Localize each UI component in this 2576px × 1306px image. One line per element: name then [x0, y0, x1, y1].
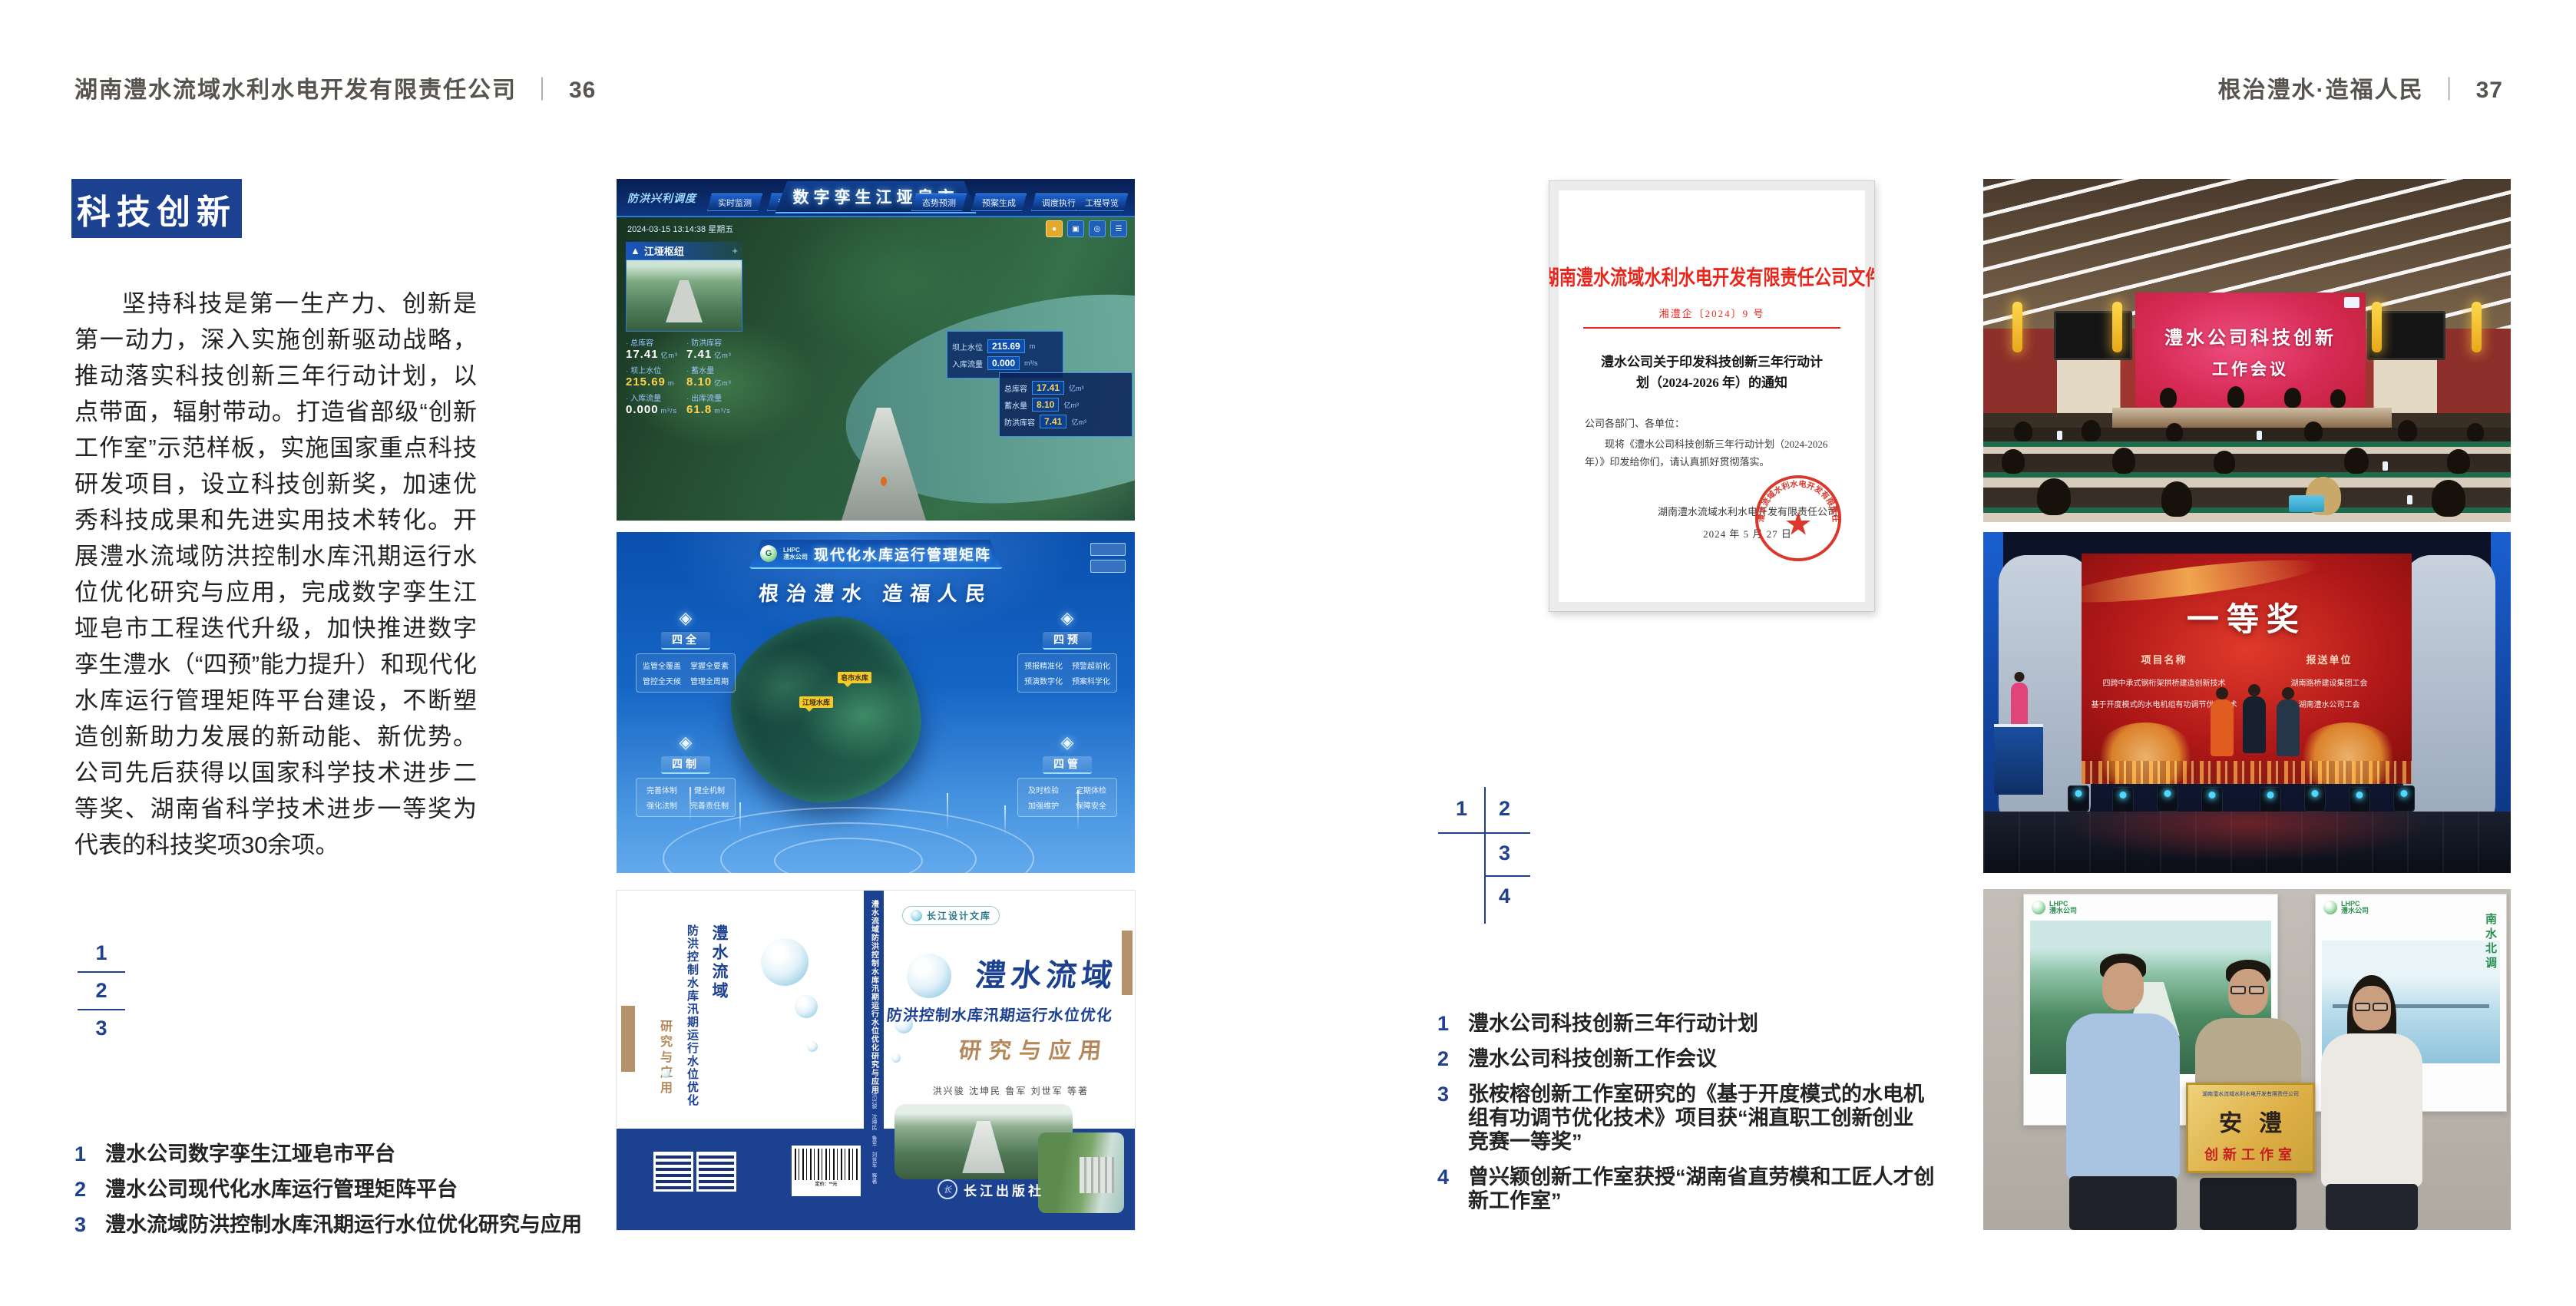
caption-text: 澧水公司科技创新三年行动计划: [1468, 1012, 1758, 1036]
station-stats: 总库容17.41亿m³ 防洪库容7.41亿m³ 坝上水位215.69m 蓄水量8…: [626, 336, 742, 416]
host-figure: [2011, 683, 2028, 729]
caption-number: 1: [74, 1142, 105, 1166]
caption-text: 澧水公司数字孪生江垭皂市平台: [105, 1142, 395, 1166]
lhpc-logo-icon: [2032, 901, 2045, 914]
figure-number: 1: [77, 941, 126, 965]
figure-index-divider: [78, 1009, 125, 1010]
back-cover-subtitle: 防洪控制水库汛期运行水位优化: [684, 924, 700, 1107]
document-number: 湘澧企〔2024〕9 号: [1559, 306, 1865, 320]
speaker-silhouette: [2227, 386, 2244, 408]
stage-light: [2201, 787, 2223, 813]
info-row: 蓄水量8.10亿m³: [1004, 398, 1127, 412]
section-title: 科技创新: [71, 179, 242, 238]
map-marker-label: 皂市水库: [838, 672, 871, 683]
bubble-decoration: [795, 995, 818, 1018]
page-header-left: 湖南澧水流域水利水电开发有限责任公司｜36: [74, 71, 596, 104]
attendee-silhouette: [2214, 451, 2235, 474]
lhpc-logo: LHPC澧水公司: [2032, 901, 2077, 914]
caption-item: 1 澧水公司数字孪生江垭皂市平台: [74, 1142, 597, 1166]
panel-items: 预报精准化预警超前化 预演数字化预案科学化: [1017, 653, 1117, 693]
stat-label: 出库流量: [686, 392, 742, 403]
back-cover-title: 澧水流域: [707, 924, 730, 1001]
rostrum-desk: [2112, 408, 2392, 428]
org-row: 湖南路桥建设集团工会: [2247, 676, 2412, 688]
lhpc-logo-icon: [2323, 901, 2337, 914]
stat-label: 入库流量: [626, 392, 682, 403]
book-spine: 澧水流域防洪控制水库汛期运行水位优化研究与应用 洪兴骏 沈坤民 鲁军 刘世军 等…: [864, 891, 884, 1230]
screen-title-line2: 工作会议: [2212, 357, 2289, 380]
figure-number: 3: [1499, 841, 1510, 865]
light-pillar: [689, 787, 691, 822]
awardee-orange: [2211, 699, 2234, 756]
dashboard-tab: 态势预测: [911, 193, 967, 211]
stat-value: 61.8m³/s: [686, 403, 742, 416]
stat-value: 215.69m: [626, 375, 682, 388]
dam-shape: [962, 1121, 1005, 1174]
stage-light: [2393, 785, 2415, 812]
stat-label: 坝上水位: [626, 364, 682, 375]
section-title-text: 科技创新: [77, 184, 236, 233]
glasses-icon: [2249, 986, 2264, 994]
station-photo: [626, 260, 742, 332]
stat-cell: 防洪库容7.41亿m³: [686, 336, 742, 361]
page-number-right: 37: [2476, 78, 2503, 103]
award-title: 一等奖: [2082, 593, 2412, 640]
tooltip-row: 入库流量0.000m³/s: [952, 356, 1058, 370]
attendee-silhouette: [2002, 449, 2025, 474]
map-marker-label: 江垭水库: [799, 696, 833, 708]
figure-index-divider: [78, 971, 125, 973]
spine-title: 澧水流域防洪控制水库汛期运行水位优化研究与应用: [868, 900, 880, 1094]
panel-title: 四预: [1043, 632, 1092, 650]
photo-innovation-studio-plaque: LHPC澧水公司 LHPC澧水公司 南水北调: [1983, 889, 2511, 1230]
caption-text: 澧水流域防洪控制水库汛期运行水位优化研究与应用: [105, 1213, 582, 1237]
stat-value: 8.10亿m³: [686, 375, 742, 388]
figure-number: 2: [77, 979, 126, 1003]
barcode-caption: 定价：**元: [795, 1180, 858, 1187]
page-header-right: 根治澧水·造福人民｜37: [2218, 71, 2503, 104]
screen-logo: [2344, 297, 2359, 308]
title-main: 澧水流域: [889, 951, 1119, 995]
studio-plaque: 湖南澧水流域水利水电开发有限责任公司 安澧 创新工作室: [2186, 1083, 2315, 1173]
dashboard-tab: 预案生成: [971, 193, 1027, 211]
series-badge: 长江设计文库: [902, 906, 1000, 925]
city-skyline-strip: [2082, 761, 2412, 784]
document-salutation: 公司各部门、各单位：: [1585, 415, 1839, 432]
white-tee-shirt: [2321, 1033, 2422, 1187]
caption-number: 2: [74, 1178, 105, 1202]
document-paragraph: 现将《澧水公司科技创新三年行动计划（2024-2026 年）》印发给你们，请认真…: [1585, 435, 1839, 471]
document-org-header: 湖南澧水流域水利水电开发有限责任公司文件: [1549, 261, 1875, 291]
stat-value: 0.000m³/s: [626, 403, 682, 416]
reflective-stage-floor: [1983, 812, 2511, 873]
slogan-text: 根治澧水·造福人民: [2218, 78, 2424, 103]
red-rule: [1583, 327, 1840, 329]
glasses-icon: [2355, 1003, 2370, 1011]
caption-number: 1: [1437, 1012, 1468, 1036]
matrix-header: G LHPC澧水公司 现代化水库运行管理矩阵: [749, 540, 1003, 569]
photo-digital-twin-platform: 防洪兴利调度 实时监测 洪水预报 防洪预警 数字孪生江垭皂市 态势预测 预案生成…: [617, 179, 1135, 521]
attendee-silhouette: [2398, 420, 2417, 441]
speaker-silhouette: [2284, 388, 2301, 408]
lhpc-logo-text: LHPC澧水公司: [2049, 901, 2077, 914]
attendee-silhouette: [2467, 423, 2484, 441]
cube-icon: ◈: [636, 733, 736, 752]
matrix-title: 现代化水库运行管理矩阵: [814, 544, 991, 564]
caption-list-left: 1 澧水公司数字孪生江垭皂市平台 2 澧水公司现代化水库运行管理矩阵平台 3 澧…: [74, 1142, 597, 1248]
document-page: 湖南澧水流域水利水电开发有限责任公司文件 湘澧企〔2024〕9 号 澧水公司关于…: [1559, 190, 1865, 602]
light-pillar: [739, 802, 741, 833]
figure-number: 3: [77, 1017, 126, 1040]
panel-items: 及时检验定期体检 加强维护保障安全: [1017, 778, 1117, 817]
caption-item: 1 澧水公司科技创新三年行动计划: [1437, 1012, 1936, 1036]
figure-index-vline: [1484, 787, 1486, 924]
stat-cell: 总库容17.41亿m³: [626, 336, 682, 361]
caption-text: 张桉榕创新工作室研究的《基于开度模式的水电机组有功调节优化技术》项目获“湘直职工…: [1468, 1083, 1929, 1154]
magazine-spread: 湖南澧水流域水利水电开发有限责任公司｜36 根治澧水·造福人民｜37 科技创新 …: [0, 0, 2576, 1306]
caption-item: 2 澧水公司科技创新工作会议: [1437, 1047, 1936, 1071]
tooltip-row: 坝上水位215.69m: [952, 339, 1058, 353]
attendee-silhouette: [2082, 420, 2101, 441]
panel-items: 完善体制健全机制 强化法制完善责任制: [636, 778, 736, 817]
caption-number: 4: [1437, 1165, 1468, 1213]
attendee-silhouette: [2166, 423, 2183, 441]
tan-accent-bar: [1122, 931, 1133, 995]
stat-label: 防洪库容: [686, 336, 742, 348]
info-row: 防洪库容7.41亿m³: [1004, 415, 1127, 428]
panel-title: 四制: [661, 756, 710, 774]
cube-icon: ◈: [1017, 733, 1117, 752]
matrix-panel-sizhi: ◈ 四制 完善体制健全机制 强化法制完善责任制: [636, 733, 736, 817]
speaker-silhouette: [2330, 389, 2346, 408]
wall-sconce-lamp: [2012, 302, 2022, 352]
stage-light: [2304, 785, 2326, 812]
bubble-decoration: [761, 938, 809, 986]
window-control-button: [1090, 543, 1126, 556]
company-name: 湖南澧水流域水利水电开发有限责任公司: [74, 78, 517, 103]
stage-light: [2112, 787, 2134, 813]
light-pillar: [1077, 790, 1079, 830]
stat-cell: 坝上水位215.69m: [626, 364, 682, 388]
title-sub: 防洪控制水库汛期运行水位优化: [886, 1003, 1114, 1025]
series-name: 长江设计文库: [927, 909, 991, 922]
light-pillar: [1004, 805, 1006, 836]
stat-cell: 入库流量0.000m³/s: [626, 392, 682, 416]
attendee-silhouette: [2304, 422, 2323, 441]
wall-sconce-lamp: [2372, 302, 2382, 352]
figure-index-divider: [1438, 832, 1530, 834]
dam-gates: [1080, 1157, 1114, 1193]
plaque-header: 湖南澧水流域水利水电开发有限责任公司: [2202, 1090, 2299, 1098]
speaker-silhouette: [2160, 388, 2177, 408]
stat-value: 17.41亿m³: [626, 348, 682, 361]
matrix-panel-siyu: ◈ 四预 预报精准化预警超前化 预演数字化预案科学化: [1017, 609, 1117, 693]
light-pillar: [947, 793, 948, 830]
blue-polo-shirt: [2066, 1013, 2180, 1179]
stat-value: 7.41亿m³: [686, 348, 742, 361]
org-row: 湖南澧水公司工会: [2247, 698, 2412, 709]
figure-number: 1: [1456, 797, 1467, 821]
trousers: [2326, 1184, 2418, 1230]
authors-line: 洪兴骏 沈坤民 鲁军 刘世军 等著: [933, 1084, 1089, 1097]
dashboard-menu-label: 防洪兴利调度: [627, 190, 696, 206]
caption-item: 2 澧水公司现代化水库运行管理矩阵平台: [74, 1178, 597, 1202]
station-panel-header: ▲ 江垭枢纽 +: [626, 242, 742, 260]
title-accent: 研究与应用: [881, 1033, 1110, 1065]
org-column: 报送单位 湖南路桥建设集团工会 湖南澧水公司工会: [2247, 652, 2412, 709]
bubble-decoration: [661, 1069, 670, 1078]
stat-cell: 出库流量61.8m³/s: [686, 392, 742, 416]
tan-accent-block: [621, 1006, 635, 1072]
lhpc-logo: LHPC澧水公司: [2323, 901, 2369, 914]
caption-text: 澧水公司科技创新工作会议: [1468, 1047, 1717, 1071]
section-body-paragraph: 坚持科技是第一生产力、创新是第一动力，深入实施创新驱动战略，推动落实科技创新三年…: [74, 286, 477, 863]
caption-text: 澧水公司现代化水库运行管理矩阵平台: [105, 1178, 458, 1202]
stat-cell: 蓄水量8.10亿m³: [686, 364, 742, 388]
cube-icon: ◈: [636, 609, 736, 627]
audience-desk-row: [1983, 441, 2511, 454]
water-bottle: [2257, 431, 2262, 440]
document-title: 澧水公司关于印发科技创新三年行动计划（2024-2026 年）的通知: [1596, 352, 1828, 393]
attendee-silhouette: [2112, 448, 2135, 474]
seal-star-icon: ★: [1784, 507, 1812, 542]
publisher-logo-icon: 长: [937, 1179, 957, 1199]
photo-book-cover: 澧水流域 防洪控制水库汛期运行水位优化 研究与应用 定价：**元 澧水流域防洪控…: [617, 891, 1135, 1230]
plaque-calligraphy: 安澧: [2202, 1104, 2299, 1138]
presenter-suit: [2243, 696, 2266, 753]
map-tooltip: 坝上水位215.69m 入库流量0.000m³/s: [947, 331, 1063, 379]
anchor-icon: ▲: [630, 245, 640, 256]
page-number-left: 36: [569, 78, 596, 103]
photo-matrix-platform: G LHPC澧水公司 现代化水库运行管理矩阵 根治澧水 造福人民 皂市水库 江垭…: [617, 532, 1135, 873]
attendee-silhouette: [2447, 449, 2470, 474]
column-header: 项目名称: [2082, 652, 2247, 666]
trousers: [2069, 1176, 2177, 1230]
caption-item: 3 张桉榕创新工作室研究的《基于开度模式的水电机组有功调节优化技术》项目获“湘直…: [1437, 1083, 1936, 1154]
dam-thumbnail: [666, 280, 703, 322]
dam-photo-secondary: [1038, 1132, 1124, 1213]
info-row: 总库容17.41亿m³: [1004, 381, 1127, 395]
face: [2102, 963, 2144, 1010]
spine-authors: 洪兴骏 沈坤民 鲁军 刘世军 等著: [870, 1093, 878, 1184]
panel-items: 监管全覆盖掌握全要素 管控全天候管理全周期: [636, 653, 736, 693]
barcode: 定价：**元: [792, 1146, 861, 1196]
window-control-button: [1090, 560, 1126, 573]
attendee-silhouette: [2037, 478, 2071, 515]
stage-light: [2349, 787, 2370, 813]
official-seal: 湖南澧水流域水利水电开发有限责任公司 ★: [1753, 473, 1844, 564]
layers-icon: ▣: [1067, 220, 1084, 237]
basin-3d-map: [723, 609, 929, 812]
changjiang-logo-icon: [911, 910, 922, 921]
barcode-stripes: [795, 1149, 858, 1180]
tissue-box: [2289, 495, 2324, 512]
attendee-silhouette: [2161, 481, 2192, 517]
lhpc-logo-text: LHPC澧水公司: [783, 547, 808, 560]
panel-title: 四全: [661, 632, 710, 650]
locate-icon: ◎: [1089, 220, 1106, 237]
header-separator: ｜: [531, 78, 555, 103]
menu-icon: ☰: [1110, 220, 1127, 237]
user-icon: ●: [1046, 220, 1063, 237]
photo-innovation-meeting: 澧水公司科技创新 工作会议: [1983, 179, 2511, 522]
photo-official-document: 湖南澧水流域水利水电开发有限责任公司文件 湘澧企〔2024〕9 号 澧水公司关于…: [1549, 180, 1875, 612]
attendee-silhouette: [2432, 480, 2465, 517]
water-bottle: [2407, 495, 2412, 504]
caption-item: 4 曾兴颖创新工作室获授“湖南省直劳模和工匠人才创新工作室”: [1437, 1165, 1936, 1213]
worker-figure: [881, 477, 887, 486]
attendee-silhouette: [2014, 422, 2032, 441]
awardee-navy: [2277, 699, 2300, 756]
lhpc-logo-icon: G: [760, 545, 777, 562]
photo-award-ceremony: 一等奖 项目名称 四跨中承式钢桁架拱桥建造创新技术 基于开度模式的水电机组有功调…: [1983, 532, 2511, 873]
bubble-decoration: [807, 1041, 818, 1052]
back-cover-accent: 研究与应用: [655, 1020, 673, 1096]
station-panel: ▲ 江垭枢纽 + 总库容17.41亿m³ 防洪库容7.41亿m³ 坝上水位215…: [626, 242, 742, 416]
poster-vertical-text: 南水北调: [2482, 913, 2498, 971]
figure-index-left: 1 2 3: [77, 941, 126, 1040]
stage-light: [2157, 785, 2178, 812]
matrix-slogan: 根治澧水 造福人民: [757, 578, 994, 607]
qr-code: [696, 1152, 736, 1192]
panel-title: 四管: [1043, 756, 1092, 774]
dashboard-tab: 工程导览: [1076, 193, 1128, 211]
project-row: 四跨中承式钢桁架拱桥建造创新技术: [2082, 676, 2247, 688]
water-bottle: [2383, 461, 2388, 471]
plaque-subtitle: 创新工作室: [2204, 1144, 2297, 1164]
column-header: 报送单位: [2247, 652, 2412, 666]
publisher-name: 长江出版社: [964, 1180, 1044, 1199]
reservoir-info-card: 总库容17.41亿m³ 蓄水量8.10亿m³ 防洪库容7.41亿m³: [999, 372, 1133, 437]
caption-text: 曾兴颖创新工作室获授“湖南省直劳模和工匠人才创新工作室”: [1468, 1165, 1936, 1213]
figure-number: 2: [1499, 797, 1510, 821]
water-bottle: [2057, 431, 2062, 440]
attendee-silhouette: [2344, 448, 2369, 474]
caption-number: 3: [74, 1213, 105, 1237]
publisher-block: 长长江出版社: [937, 1179, 1044, 1199]
dashboard-timestamp: 2024-03-15 13:14:38 星期五: [627, 223, 733, 235]
qr-code: [653, 1152, 693, 1192]
stat-label: 总库容: [626, 336, 682, 348]
wall-sconce-lamp: [2112, 302, 2122, 352]
stat-label: 蓄水量: [686, 364, 742, 375]
front-cover-title-block: 澧水流域 防洪控制水库汛期运行水位优化 研究与应用: [881, 951, 1119, 1065]
dashboard-toolbar: ● ▣ ◎ ☰: [1046, 220, 1127, 237]
wall-sconce-lamp: [2472, 302, 2482, 352]
caption-number: 2: [1437, 1047, 1468, 1071]
screen-title-line1: 澧水公司科技创新: [2164, 322, 2336, 349]
caption-item: 3 澧水流域防洪控制水库汛期运行水位优化研究与应用: [74, 1213, 597, 1237]
station-name: 江垭枢纽: [644, 243, 684, 258]
figure-number: 4: [1499, 884, 1510, 908]
glasses-icon: [2373, 1003, 2388, 1011]
matrix-panel-siquan: ◈ 四全 监管全覆盖掌握全要素 管控全天候管理全周期: [636, 609, 736, 693]
host-podium: [1994, 724, 2043, 795]
stage-light: [2260, 787, 2281, 813]
header-separator: ｜: [2438, 78, 2462, 103]
trousers: [2200, 1178, 2297, 1230]
caption-number: 3: [1437, 1083, 1468, 1154]
stage-light: [2068, 785, 2089, 812]
matrix-panel-siguan: ◈ 四管 及时检验定期体检 加强维护保障安全: [1017, 733, 1117, 817]
audience-area: [1983, 428, 2511, 522]
caption-list-right: 1 澧水公司科技创新三年行动计划 2 澧水公司科技创新工作会议 3 张桉榕创新工…: [1437, 1012, 1936, 1225]
cube-icon: ◈: [1017, 609, 1117, 627]
lhpc-logo-text: LHPC澧水公司: [2341, 901, 2369, 914]
figure-index-divider: [1484, 875, 1530, 877]
stage-side-structure: [2403, 555, 2495, 832]
document-body: 公司各部门、各单位： 现将《澧水公司科技创新三年行动计划（2024-2026 年…: [1585, 415, 1839, 471]
glasses-icon: [2230, 986, 2246, 994]
dashboard-tab: 实时监测: [707, 193, 762, 211]
expand-icon: +: [732, 245, 738, 256]
